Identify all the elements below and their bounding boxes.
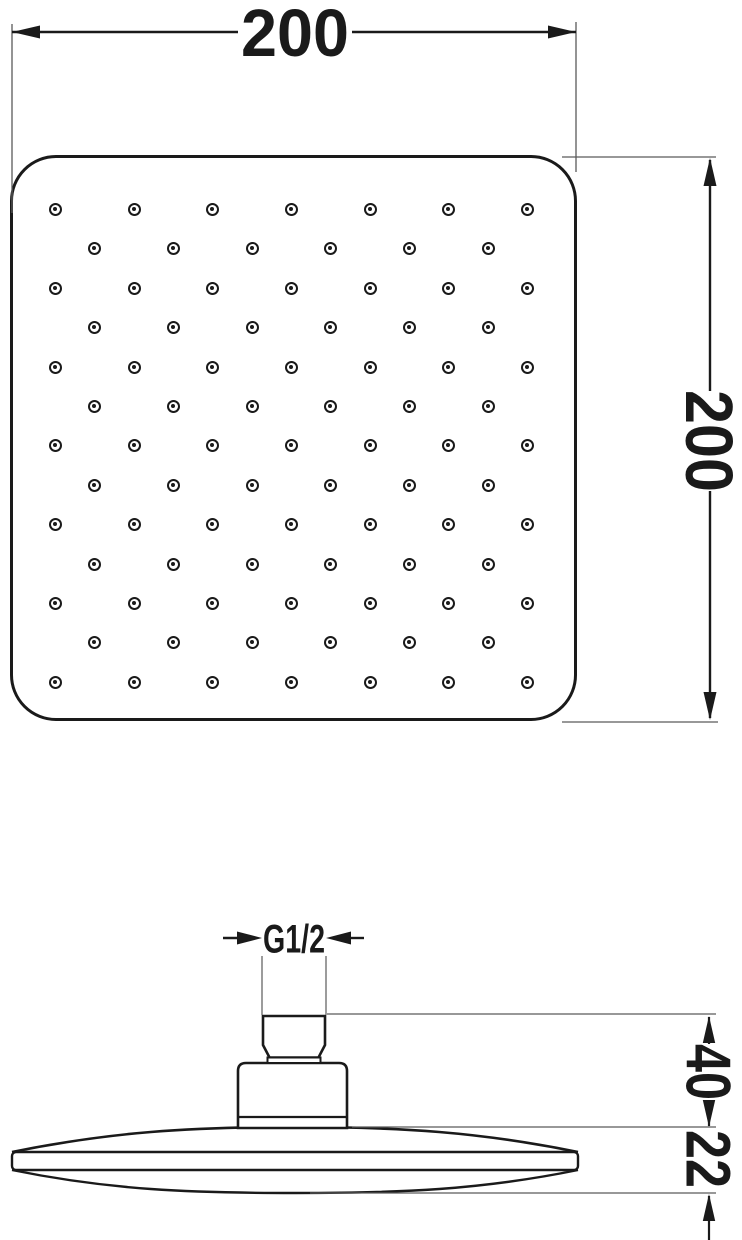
disc-bottom-curve <box>12 1170 578 1193</box>
arrowhead-down-icon <box>703 1100 715 1127</box>
dimension-disc-thickness-label: 22 <box>672 1130 742 1188</box>
dimension-mount-height: 40 22 <box>310 1014 742 1240</box>
dimension-thread: G1/2 <box>223 917 364 1015</box>
thread-collar <box>268 1058 321 1064</box>
arrowhead-left-icon <box>12 26 40 39</box>
arrowhead-right-icon <box>548 26 576 39</box>
dimension-thread-label: G1/2 <box>263 917 325 961</box>
dimension-width-label: 200 <box>241 0 349 71</box>
dimension-mount-height-label: 40 <box>672 1044 742 1100</box>
arrowhead-down-icon <box>704 692 717 720</box>
arrowhead-right-icon <box>237 932 262 945</box>
disc-rim-band <box>12 1152 578 1170</box>
thread-connector <box>263 1016 325 1058</box>
dimension-height-label: 200 <box>671 390 742 492</box>
arrowhead-left-icon <box>326 932 351 945</box>
shower-head-side-view <box>12 1016 578 1193</box>
arrowhead-up-icon <box>703 1016 715 1043</box>
arrowhead-up-icon <box>704 158 717 186</box>
dimension-linework: 200 200 <box>0 0 742 1240</box>
dimension-height: 200 <box>562 157 742 722</box>
mount-base <box>238 1063 347 1128</box>
dimension-width: 200 <box>12 0 576 213</box>
disc-top-curve <box>12 1127 578 1152</box>
technical-drawing: 200 200 <box>0 0 742 1240</box>
